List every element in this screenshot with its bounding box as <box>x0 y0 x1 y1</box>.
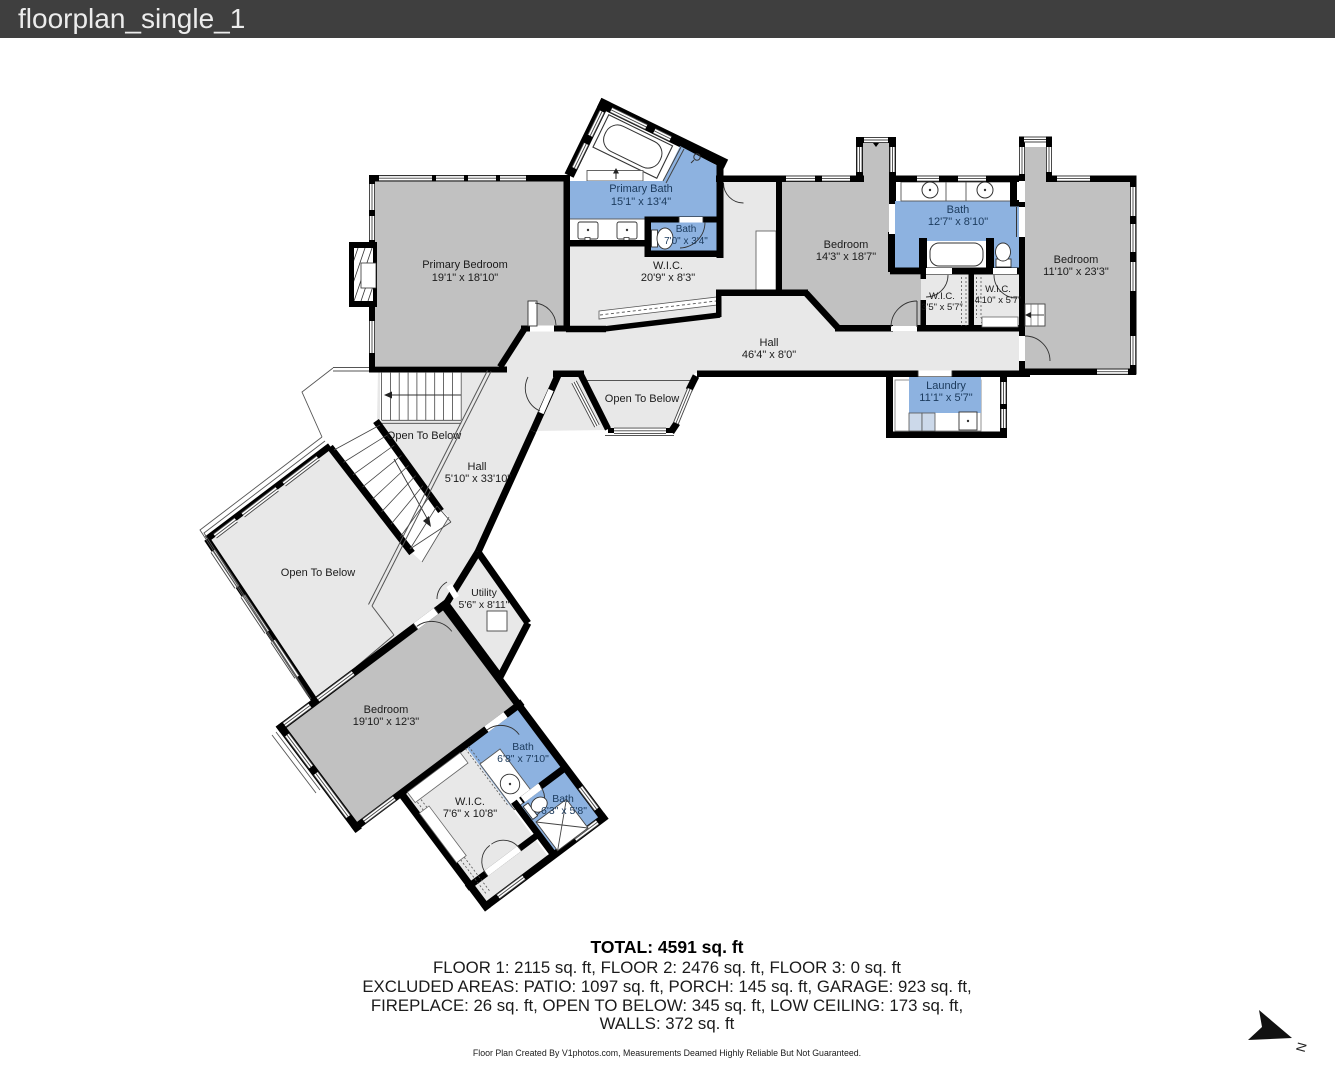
svg-text:Open To Below: Open To Below <box>605 393 679 405</box>
svg-text:Bedroom: Bedroom <box>824 239 869 251</box>
svg-text:14'3" x 18'7": 14'3" x 18'7" <box>816 251 876 263</box>
svg-text:7'0" x 3'4": 7'0" x 3'4" <box>664 236 708 247</box>
svg-text:5'6" x 8'11": 5'6" x 8'11" <box>459 599 510 611</box>
svg-text:19'10" x 12'3": 19'10" x 12'3" <box>353 716 420 728</box>
svg-text:11'10" x 23'3": 11'10" x 23'3" <box>1043 266 1109 278</box>
svg-text:EXCLUDED AREAS: PATIO: 1097 sq: EXCLUDED AREAS: PATIO: 1097 sq. ft, PORC… <box>362 977 971 996</box>
svg-text:Primary Bath: Primary Bath <box>609 183 673 195</box>
svg-text:7'6" x 10'8": 7'6" x 10'8" <box>443 808 497 820</box>
svg-text:WALLS: 372 sq. ft: WALLS: 372 sq. ft <box>600 1014 735 1033</box>
svg-text:Bath: Bath <box>676 224 697 235</box>
svg-text:11'1" x 5'7": 11'1" x 5'7" <box>919 392 972 404</box>
svg-text:Open To Below: Open To Below <box>387 430 461 442</box>
svg-text:Floor Plan Created By V1photos: Floor Plan Created By V1photos.com, Meas… <box>473 1048 861 1058</box>
svg-text:W.I.C.: W.I.C. <box>985 284 1011 295</box>
svg-text:5'10" x 33'10": 5'10" x 33'10" <box>445 473 512 485</box>
svg-text:Bath: Bath <box>552 793 574 805</box>
svg-text:Hall: Hall <box>468 461 487 473</box>
svg-text:Hall: Hall <box>760 337 779 349</box>
svg-text:W.I.C.: W.I.C. <box>455 796 485 808</box>
svg-text:W.I.C.: W.I.C. <box>929 291 955 302</box>
svg-text:FLOOR 1: 2115 sq. ft, FLOOR 2:: FLOOR 1: 2115 sq. ft, FLOOR 2: 2476 sq. … <box>433 958 901 977</box>
svg-text:Open To Below: Open To Below <box>281 567 355 579</box>
svg-text:Utility: Utility <box>471 587 497 599</box>
svg-text:6'3" x 5'8": 6'3" x 5'8" <box>541 805 587 817</box>
svg-text:Bath: Bath <box>512 741 534 753</box>
svg-text:FIREPLACE: 26 sq. ft, OPEN TO: FIREPLACE: 26 sq. ft, OPEN TO BELOW: 345… <box>371 996 963 1015</box>
svg-text:Primary Bedroom: Primary Bedroom <box>422 259 508 271</box>
svg-text:Bedroom: Bedroom <box>1054 254 1099 266</box>
svg-text:W.I.C.: W.I.C. <box>653 260 683 272</box>
svg-text:N: N <box>1293 1041 1310 1054</box>
svg-text:46'4" x 8'0": 46'4" x 8'0" <box>742 349 796 361</box>
svg-text:19'1" x 18'10": 19'1" x 18'10" <box>432 272 499 284</box>
svg-text:Laundry: Laundry <box>926 380 966 392</box>
svg-text:3'5" x 5'7": 3'5" x 5'7" <box>921 302 963 313</box>
svg-text:6'8" x 7'10": 6'8" x 7'10" <box>497 753 549 765</box>
svg-text:TOTAL: 4591 sq. ft: TOTAL: 4591 sq. ft <box>591 937 744 957</box>
svg-text:Bedroom: Bedroom <box>364 704 409 716</box>
svg-text:20'9" x 8'3": 20'9" x 8'3" <box>641 272 695 284</box>
svg-text:4'10" x 5'7": 4'10" x 5'7" <box>975 295 1022 306</box>
svg-text:15'1" x 13'4": 15'1" x 13'4" <box>611 196 671 208</box>
svg-text:Bath: Bath <box>947 204 970 216</box>
svg-text:12'7" x 8'10": 12'7" x 8'10" <box>928 216 988 228</box>
